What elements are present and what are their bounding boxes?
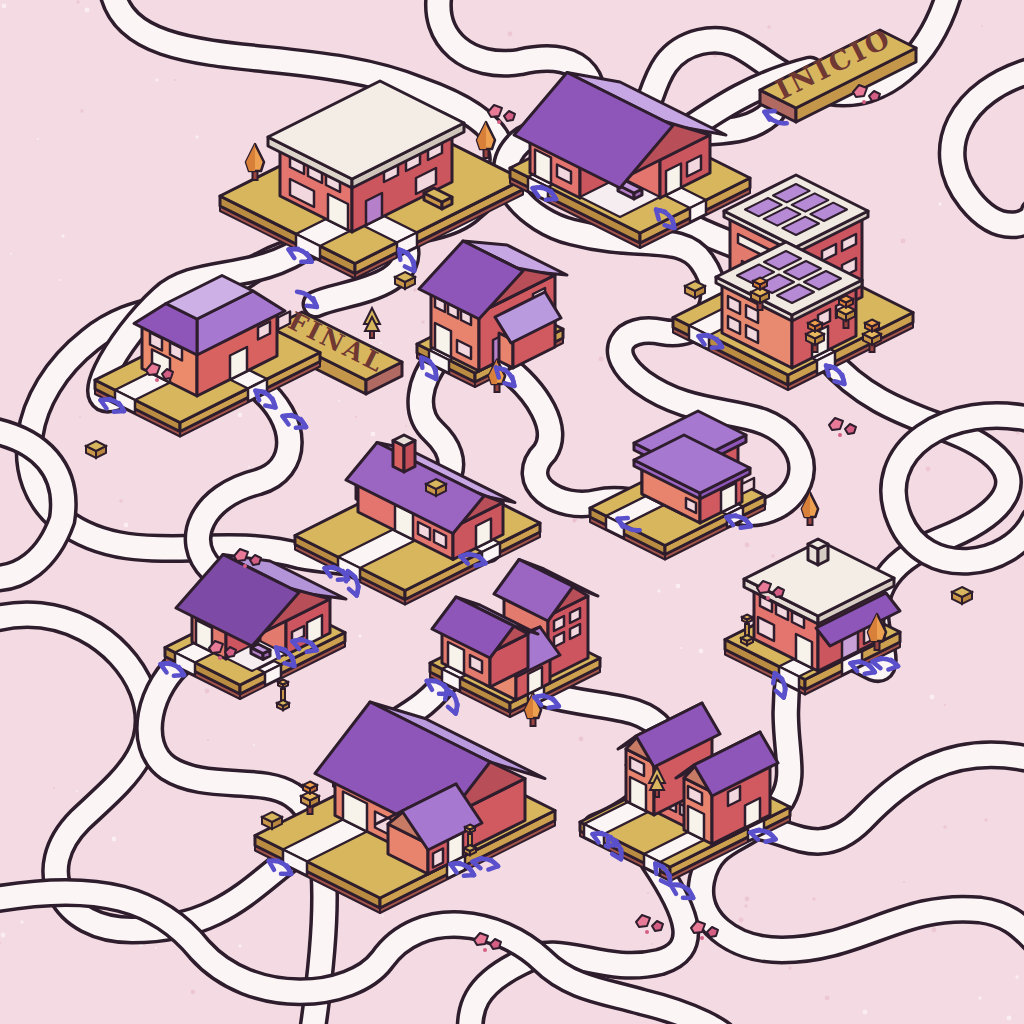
maze-canvas: INICIO FINAL bbox=[0, 0, 1024, 1024]
crate-icon bbox=[278, 680, 288, 689]
crate-icon bbox=[742, 615, 752, 624]
crate-icon bbox=[465, 825, 475, 834]
crate-icon bbox=[685, 281, 705, 298]
crate-icon bbox=[303, 782, 317, 794]
crate-icon bbox=[865, 320, 879, 332]
crate-icon bbox=[753, 278, 767, 290]
crate-icon bbox=[277, 700, 289, 710]
crate-icon bbox=[426, 479, 446, 496]
crate-icon bbox=[808, 320, 822, 332]
crate-icon bbox=[741, 635, 753, 645]
crate-icon bbox=[86, 441, 106, 458]
crate-icon bbox=[262, 812, 282, 829]
crate-icon bbox=[395, 272, 415, 289]
crate-icon bbox=[839, 296, 853, 308]
crate-icon bbox=[464, 845, 476, 855]
crate-icon bbox=[952, 587, 972, 604]
